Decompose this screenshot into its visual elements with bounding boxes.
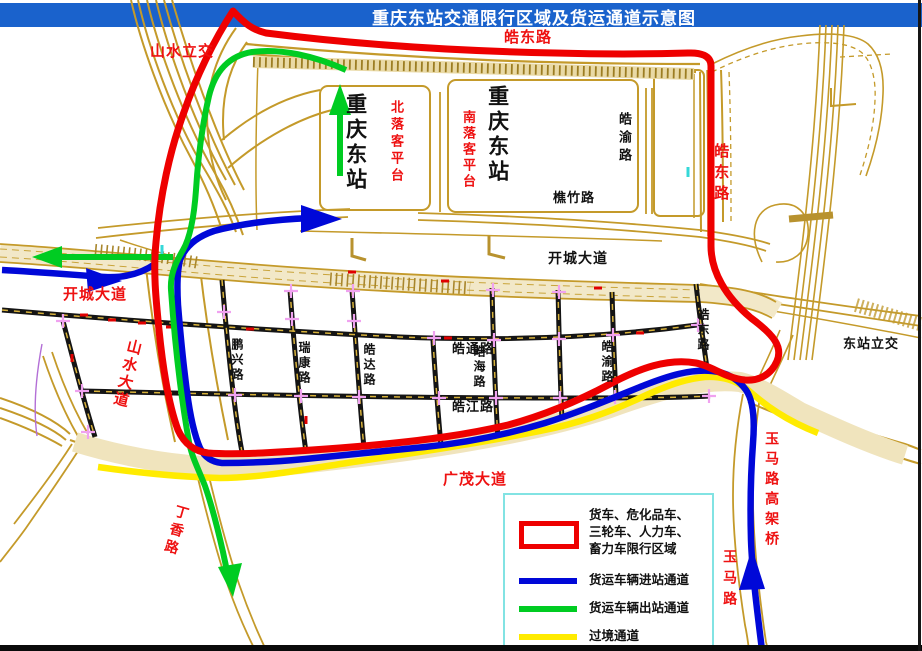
road-network <box>0 0 921 650</box>
map-screenshot: 重庆东站交通限行区域及货运通道示意图 <box>0 0 922 651</box>
bottom-border <box>0 645 922 651</box>
legend-restriction-label: 货车、危化品车、 三轮车、人力车、 畜力车限行区域 <box>589 507 689 558</box>
legend-line: 畜力车限行区域 <box>589 541 689 558</box>
restriction-area-symbol <box>519 521 579 549</box>
exit-channel-symbol <box>519 606 577 612</box>
entry-channel-symbol <box>519 578 577 584</box>
exit-arrow-north <box>329 84 351 115</box>
right-border <box>918 0 921 651</box>
entry-arrow-yuma <box>739 548 765 590</box>
legend-line: 货车、危化品车、 <box>589 507 689 524</box>
legend-transit-label: 过境通道 <box>589 628 639 645</box>
map-canvas <box>0 0 922 651</box>
legend-exit-label: 货运车辆出站通道 <box>589 600 689 617</box>
legend: 货车、危化品车、 三轮车、人力车、 畜力车限行区域 货运车辆进站通道 货运车辆出… <box>503 493 714 650</box>
legend-line: 三轮车、人力车、 <box>589 524 689 541</box>
legend-entry-label: 货运车辆进站通道 <box>589 572 689 589</box>
transit-channel-symbol <box>519 634 577 640</box>
